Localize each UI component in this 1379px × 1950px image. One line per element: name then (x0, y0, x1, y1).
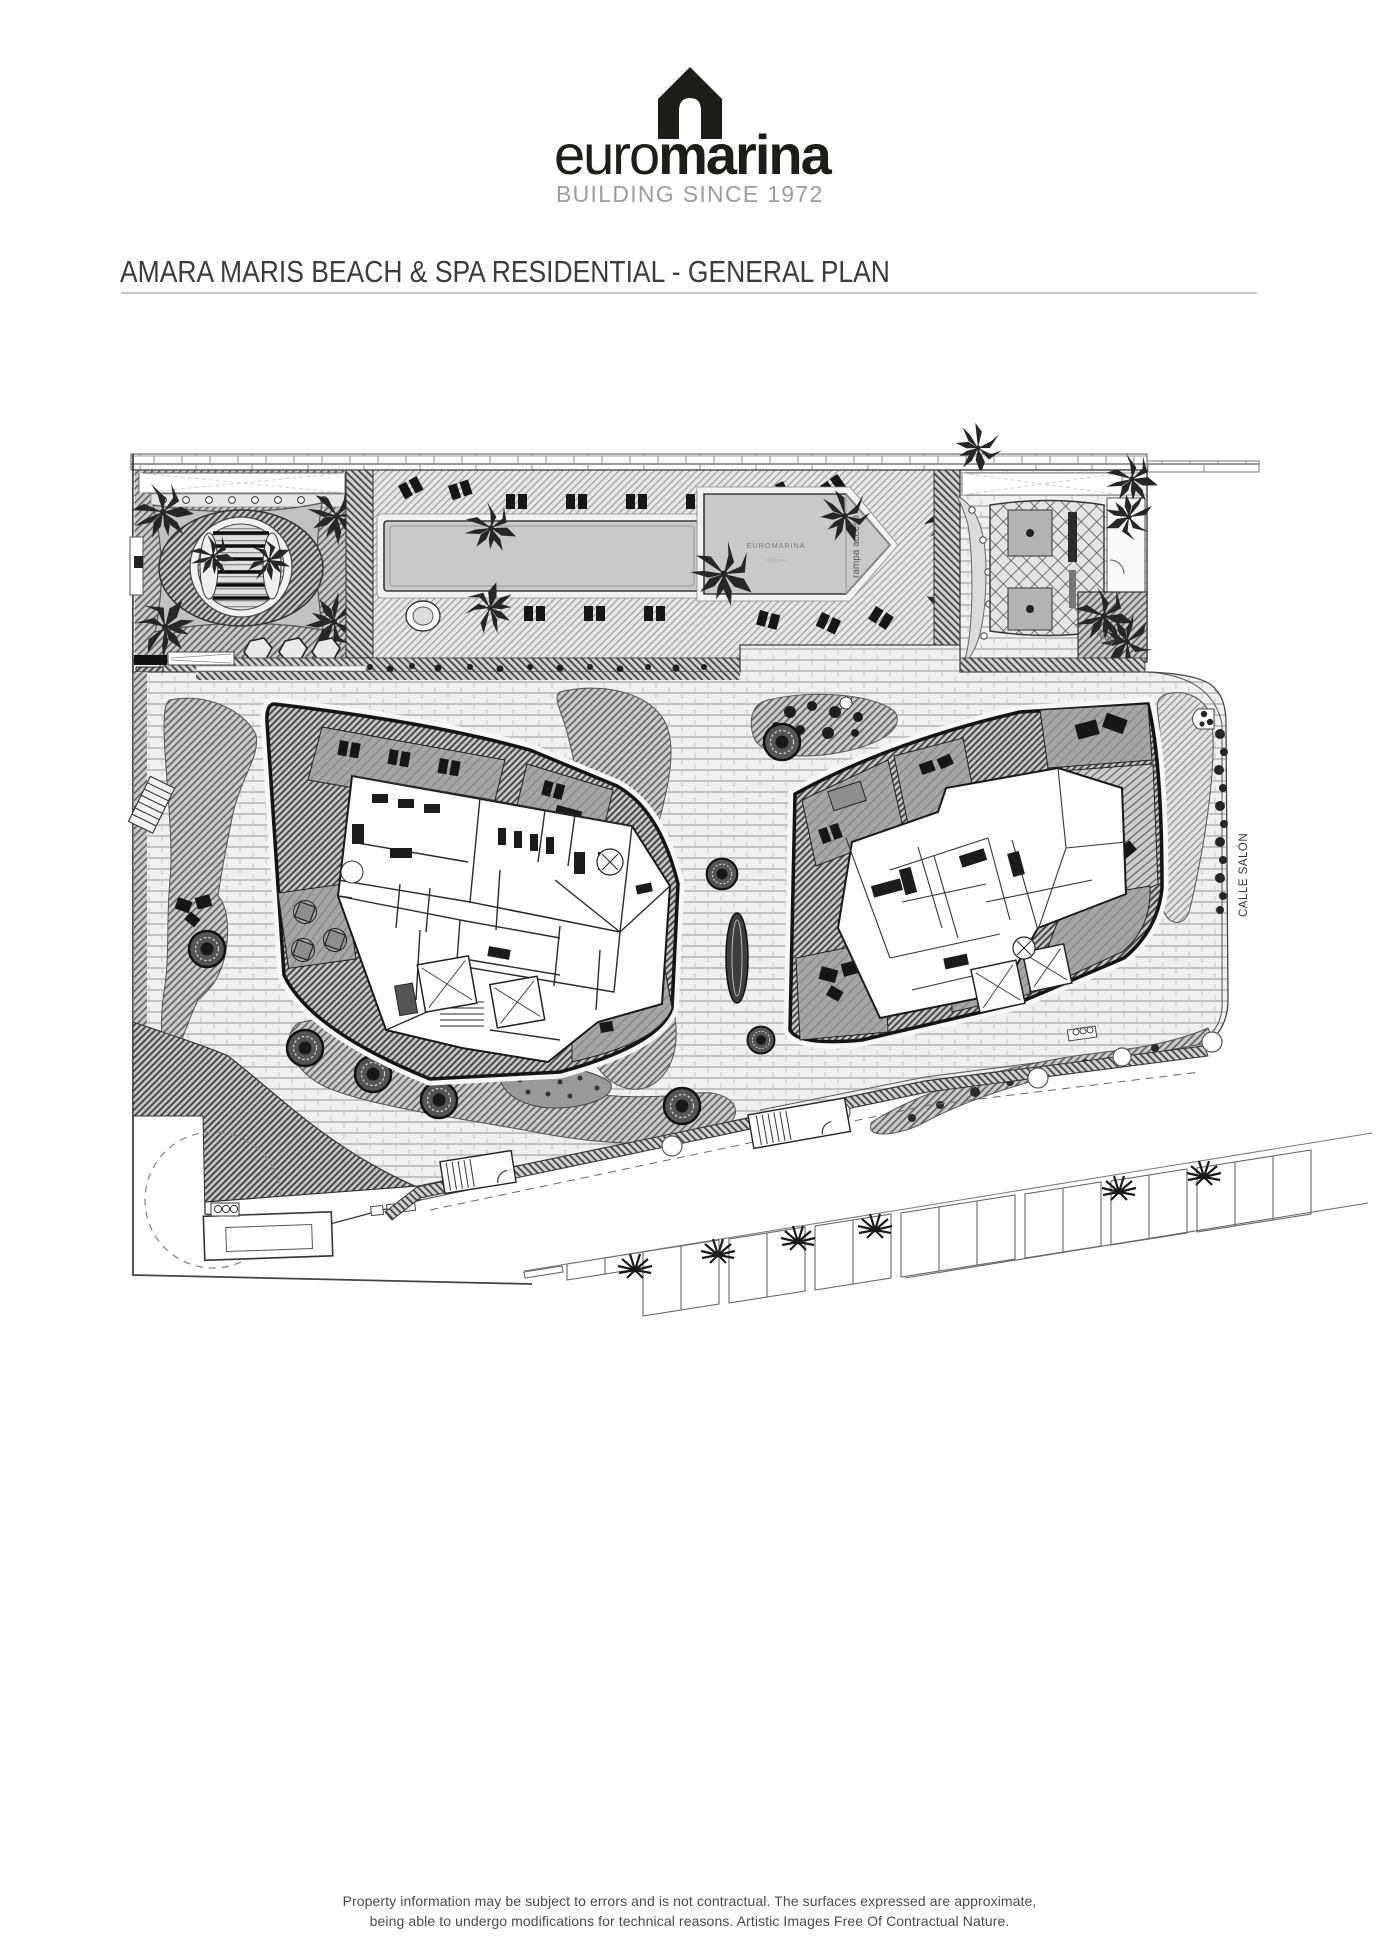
svg-text:EUROMARINA: EUROMARINA (747, 541, 806, 550)
svg-text:CALLE SALÓN: CALLE SALÓN (1237, 833, 1250, 917)
svg-text:PISCINA: PISCINA (767, 558, 785, 563)
